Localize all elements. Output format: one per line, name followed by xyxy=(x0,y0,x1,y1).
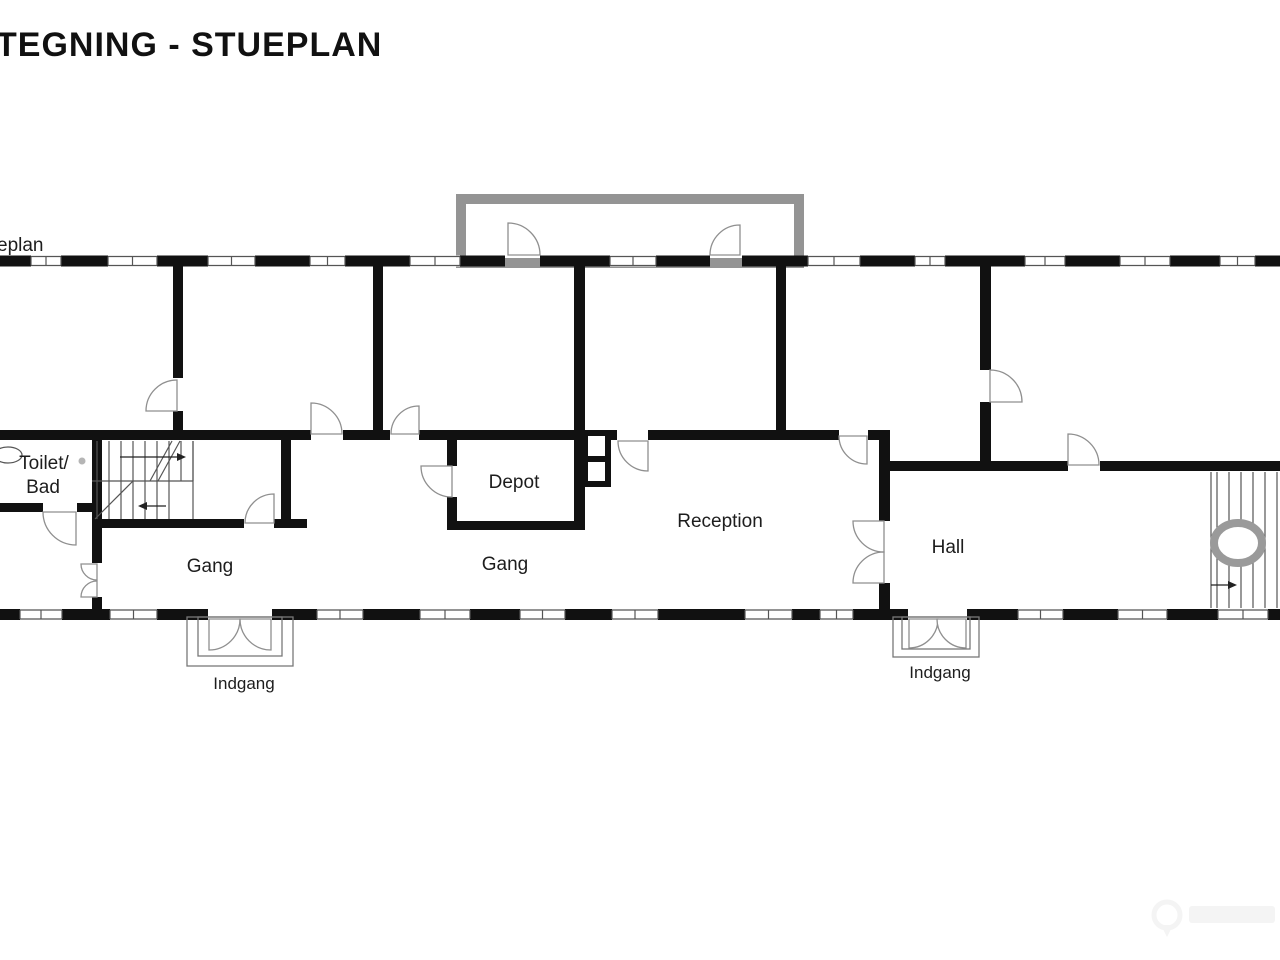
exterior-wall-segment xyxy=(0,609,20,620)
interior-wall xyxy=(879,430,890,521)
interior-wall xyxy=(92,597,102,615)
interior-wall xyxy=(0,503,43,512)
door-arc-entrance-left-leaf-b xyxy=(240,619,271,650)
exterior-wall-segment xyxy=(460,256,505,267)
room-label-reception: Reception xyxy=(677,511,763,532)
stair-arrow-head xyxy=(138,502,147,510)
stair-arrow-head xyxy=(1228,581,1237,589)
exterior-wall-segment xyxy=(1268,609,1280,620)
watermark-pin-icon xyxy=(1154,902,1180,928)
exterior-wall-segment xyxy=(345,256,410,267)
door-arc-reception-double-top xyxy=(853,521,884,552)
door-arc-door-hall-top xyxy=(1068,434,1099,465)
room-label-indgang: Indgang xyxy=(909,663,970,682)
exterior-wall-segment xyxy=(61,256,108,267)
exterior-wall-segment xyxy=(1167,609,1218,620)
exterior-wall-segment xyxy=(656,256,710,267)
exterior-wall-segment xyxy=(255,256,310,267)
exterior-wall-segment xyxy=(470,609,520,620)
stair-ring xyxy=(1214,523,1262,563)
door-arc-entrance-left-leaf-a xyxy=(209,619,240,650)
door-arc-door-room1-corridor xyxy=(311,403,342,434)
exterior-wall-segment xyxy=(742,256,808,267)
exterior-wall-segment xyxy=(157,609,208,620)
interior-wall xyxy=(173,266,183,378)
interior-wall xyxy=(1100,461,1280,471)
room-label-hall: Hall xyxy=(932,537,965,558)
exterior-wall-segment xyxy=(0,256,31,267)
door-arc-door-room2-corridor xyxy=(391,406,419,434)
room-label-gang: Gang xyxy=(482,554,528,575)
interior-wall xyxy=(574,266,585,530)
exterior-wall-segment xyxy=(967,609,1018,620)
interior-wall xyxy=(281,438,291,521)
exterior-wall-segment xyxy=(945,256,1025,267)
exterior-wall-segment xyxy=(860,256,915,267)
interior-wall xyxy=(980,266,991,370)
exterior-wall-segment xyxy=(62,609,110,620)
chimney-divider xyxy=(585,456,608,462)
interior-wall xyxy=(648,430,839,440)
floor-plan-canvas: Toilet/BadGangDepotGangReceptionHallIndg… xyxy=(0,0,1280,960)
fixture-dot xyxy=(79,458,86,465)
door-arc-door-depot-corner xyxy=(618,441,648,471)
door-arc-door-reception-top xyxy=(839,436,867,464)
exterior-wall-segment xyxy=(658,609,745,620)
watermark-pin-tail xyxy=(1161,925,1173,937)
door-arc-door-left-small-b xyxy=(81,581,97,597)
floor-plan-page: TEGNING - STUEPLAN Toilet/BadGangDepotGa… xyxy=(0,0,1280,960)
exterior-wall-segment xyxy=(1065,256,1120,267)
room-label-toilet: Toilet/ xyxy=(19,453,69,474)
room-label-indgang: Indgang xyxy=(213,674,274,693)
exterior-wall-segment xyxy=(1063,609,1118,620)
exterior-wall-segment xyxy=(363,609,420,620)
interior-wall xyxy=(879,583,890,612)
interior-wall xyxy=(92,519,244,528)
interior-wall xyxy=(447,436,457,466)
interior-wall xyxy=(373,266,383,436)
exterior-wall-segment xyxy=(272,609,317,620)
room-label-bad: Bad xyxy=(26,477,60,498)
interior-wall xyxy=(0,430,311,440)
exterior-wall-segment xyxy=(1170,256,1220,267)
interior-wall xyxy=(173,411,183,436)
interior-wall xyxy=(980,402,991,468)
door-arc-terrace-door-right xyxy=(710,225,740,255)
exterior-wall-segment xyxy=(157,256,208,267)
exterior-wall-segment xyxy=(1255,256,1280,267)
door-arc-door-depot-left xyxy=(421,466,452,497)
interior-wall xyxy=(447,521,585,530)
interior-wall xyxy=(447,497,457,527)
door-arc-door-left-small-a xyxy=(81,564,97,580)
exterior-wall-segment xyxy=(540,256,610,267)
cropped-stueplan-label: eplan xyxy=(0,235,44,256)
watermark-text-blob xyxy=(1189,906,1275,923)
door-arc-entrance-right-leaf-b xyxy=(937,619,966,648)
door-arc-door-stair-room xyxy=(146,380,177,411)
room-label-gang: Gang xyxy=(187,556,233,577)
exterior-wall-segment xyxy=(565,609,612,620)
door-arc-door-toilet xyxy=(43,512,76,545)
interior-wall xyxy=(886,461,1068,471)
door-arc-door-right-room xyxy=(990,370,1022,402)
room-label-depot: Depot xyxy=(489,472,540,493)
door-arc-reception-double-bottom xyxy=(853,552,884,583)
door-arc-terrace-door-left xyxy=(508,223,540,255)
exterior-wall-segment xyxy=(792,609,820,620)
door-arc-door-stair-corridor xyxy=(245,494,274,523)
door-arc-entrance-right-leaf-a xyxy=(909,619,938,648)
interior-wall xyxy=(776,266,786,436)
